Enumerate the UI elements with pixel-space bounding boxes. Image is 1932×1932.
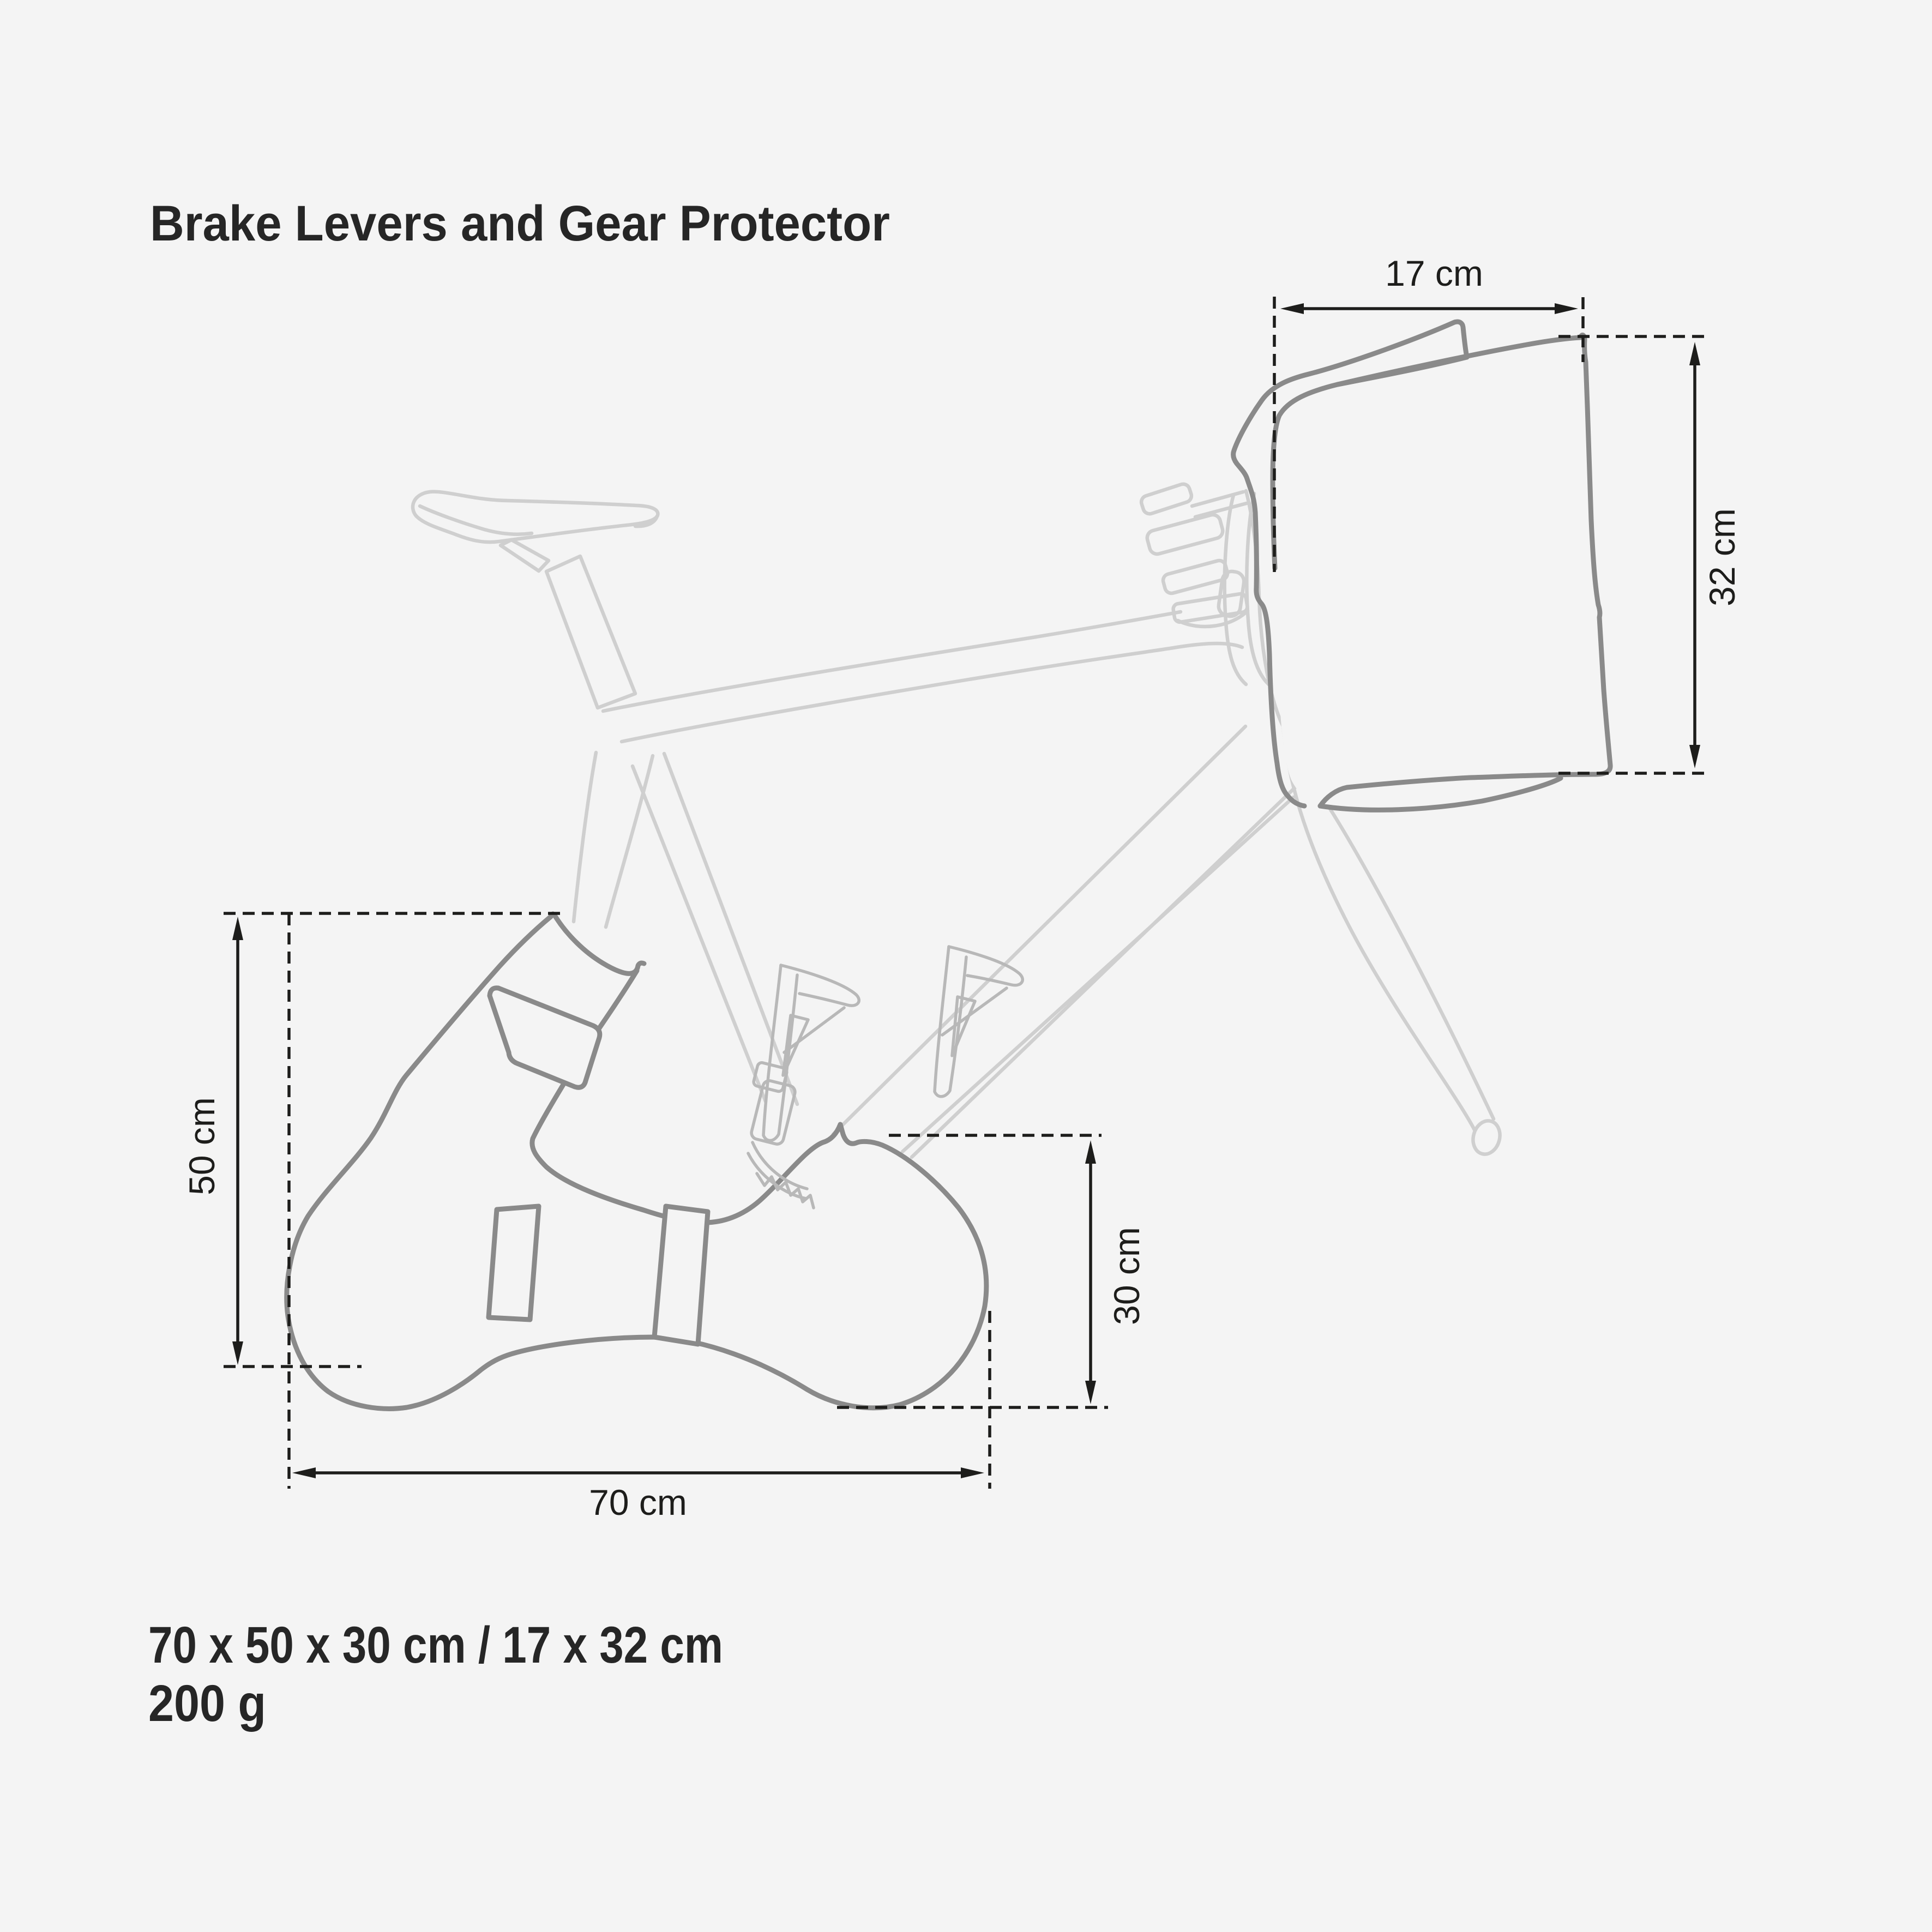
svg-text:32 cm: 32 cm xyxy=(1702,508,1742,606)
svg-text:Brake Levers and Gear Protecto: Brake Levers and Gear Protector xyxy=(150,196,890,251)
svg-text:17 cm: 17 cm xyxy=(1385,253,1483,293)
svg-text:200 g: 200 g xyxy=(148,1675,266,1732)
svg-text:70 x 50 x 30 cm / 17 x 32 cm: 70 x 50 x 30 cm / 17 x 32 cm xyxy=(148,1616,723,1674)
svg-text:30 cm: 30 cm xyxy=(1106,1227,1147,1325)
svg-text:70 cm: 70 cm xyxy=(589,1482,687,1522)
svg-text:50 cm: 50 cm xyxy=(182,1097,222,1195)
